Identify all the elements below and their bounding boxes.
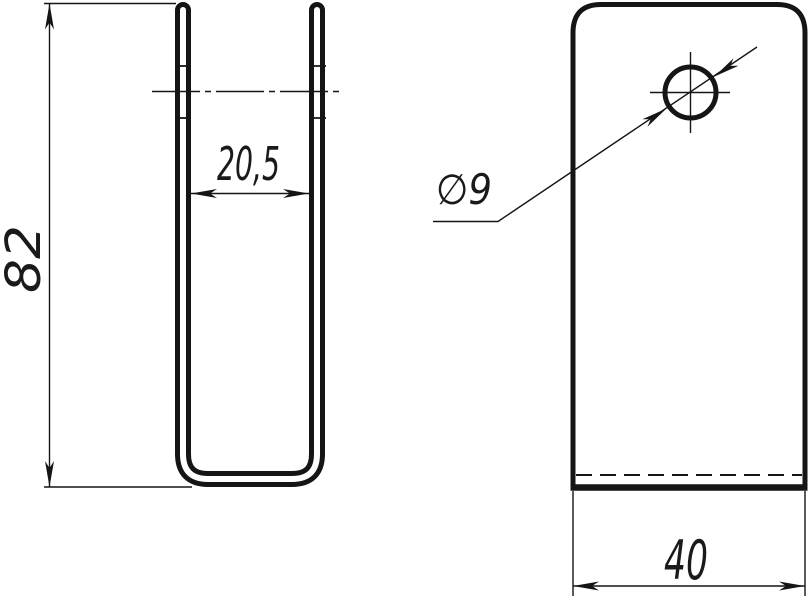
width-dim-label: 40 xyxy=(664,529,708,592)
u-channel-profile-outer xyxy=(183,10,317,479)
side-view: 82 20,5 xyxy=(0,4,344,488)
technical-drawing: 82 20,5 xyxy=(0,0,812,596)
dimension-height: 82 xyxy=(0,4,192,488)
plate-outline xyxy=(573,5,805,488)
drawing-canvas: 82 20,5 xyxy=(0,0,812,596)
hole-diameter-dim-label: ∅9 xyxy=(436,165,492,214)
arrow-upper-right-icon xyxy=(642,105,669,127)
height-dim-label: 82 xyxy=(0,225,52,293)
dimension-width: 40 xyxy=(573,491,805,596)
front-view: ∅9 40 xyxy=(433,5,808,596)
dimension-inner-width: 20,5 xyxy=(191,137,309,198)
u-channel-profile-core xyxy=(183,10,317,479)
inner-width-dim-label: 20,5 xyxy=(217,137,280,191)
